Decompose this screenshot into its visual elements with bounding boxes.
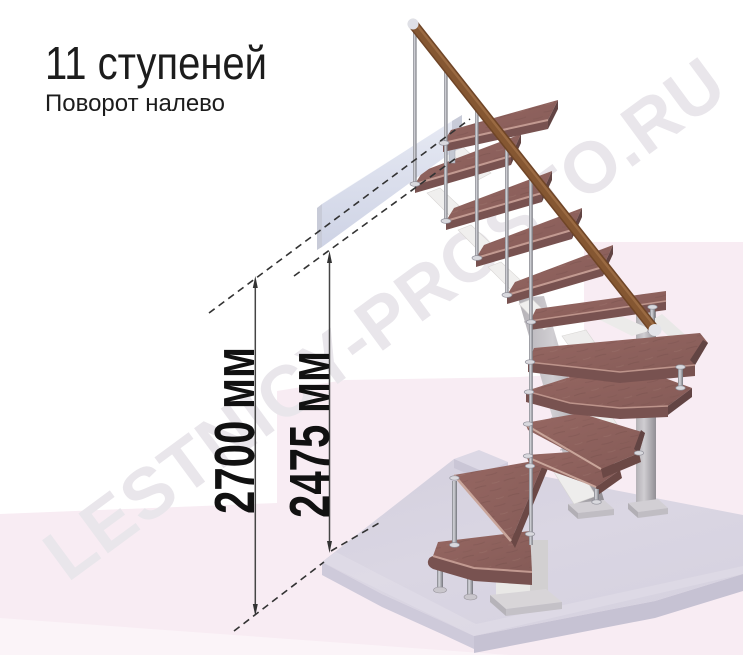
svg-text:2700 мм: 2700 мм	[203, 347, 267, 514]
svg-text:Поворот налево: Поворот налево	[45, 90, 225, 117]
svg-text:11 ступеней: 11 ступеней	[45, 37, 267, 89]
svg-text:2475 мм: 2475 мм	[278, 351, 342, 518]
